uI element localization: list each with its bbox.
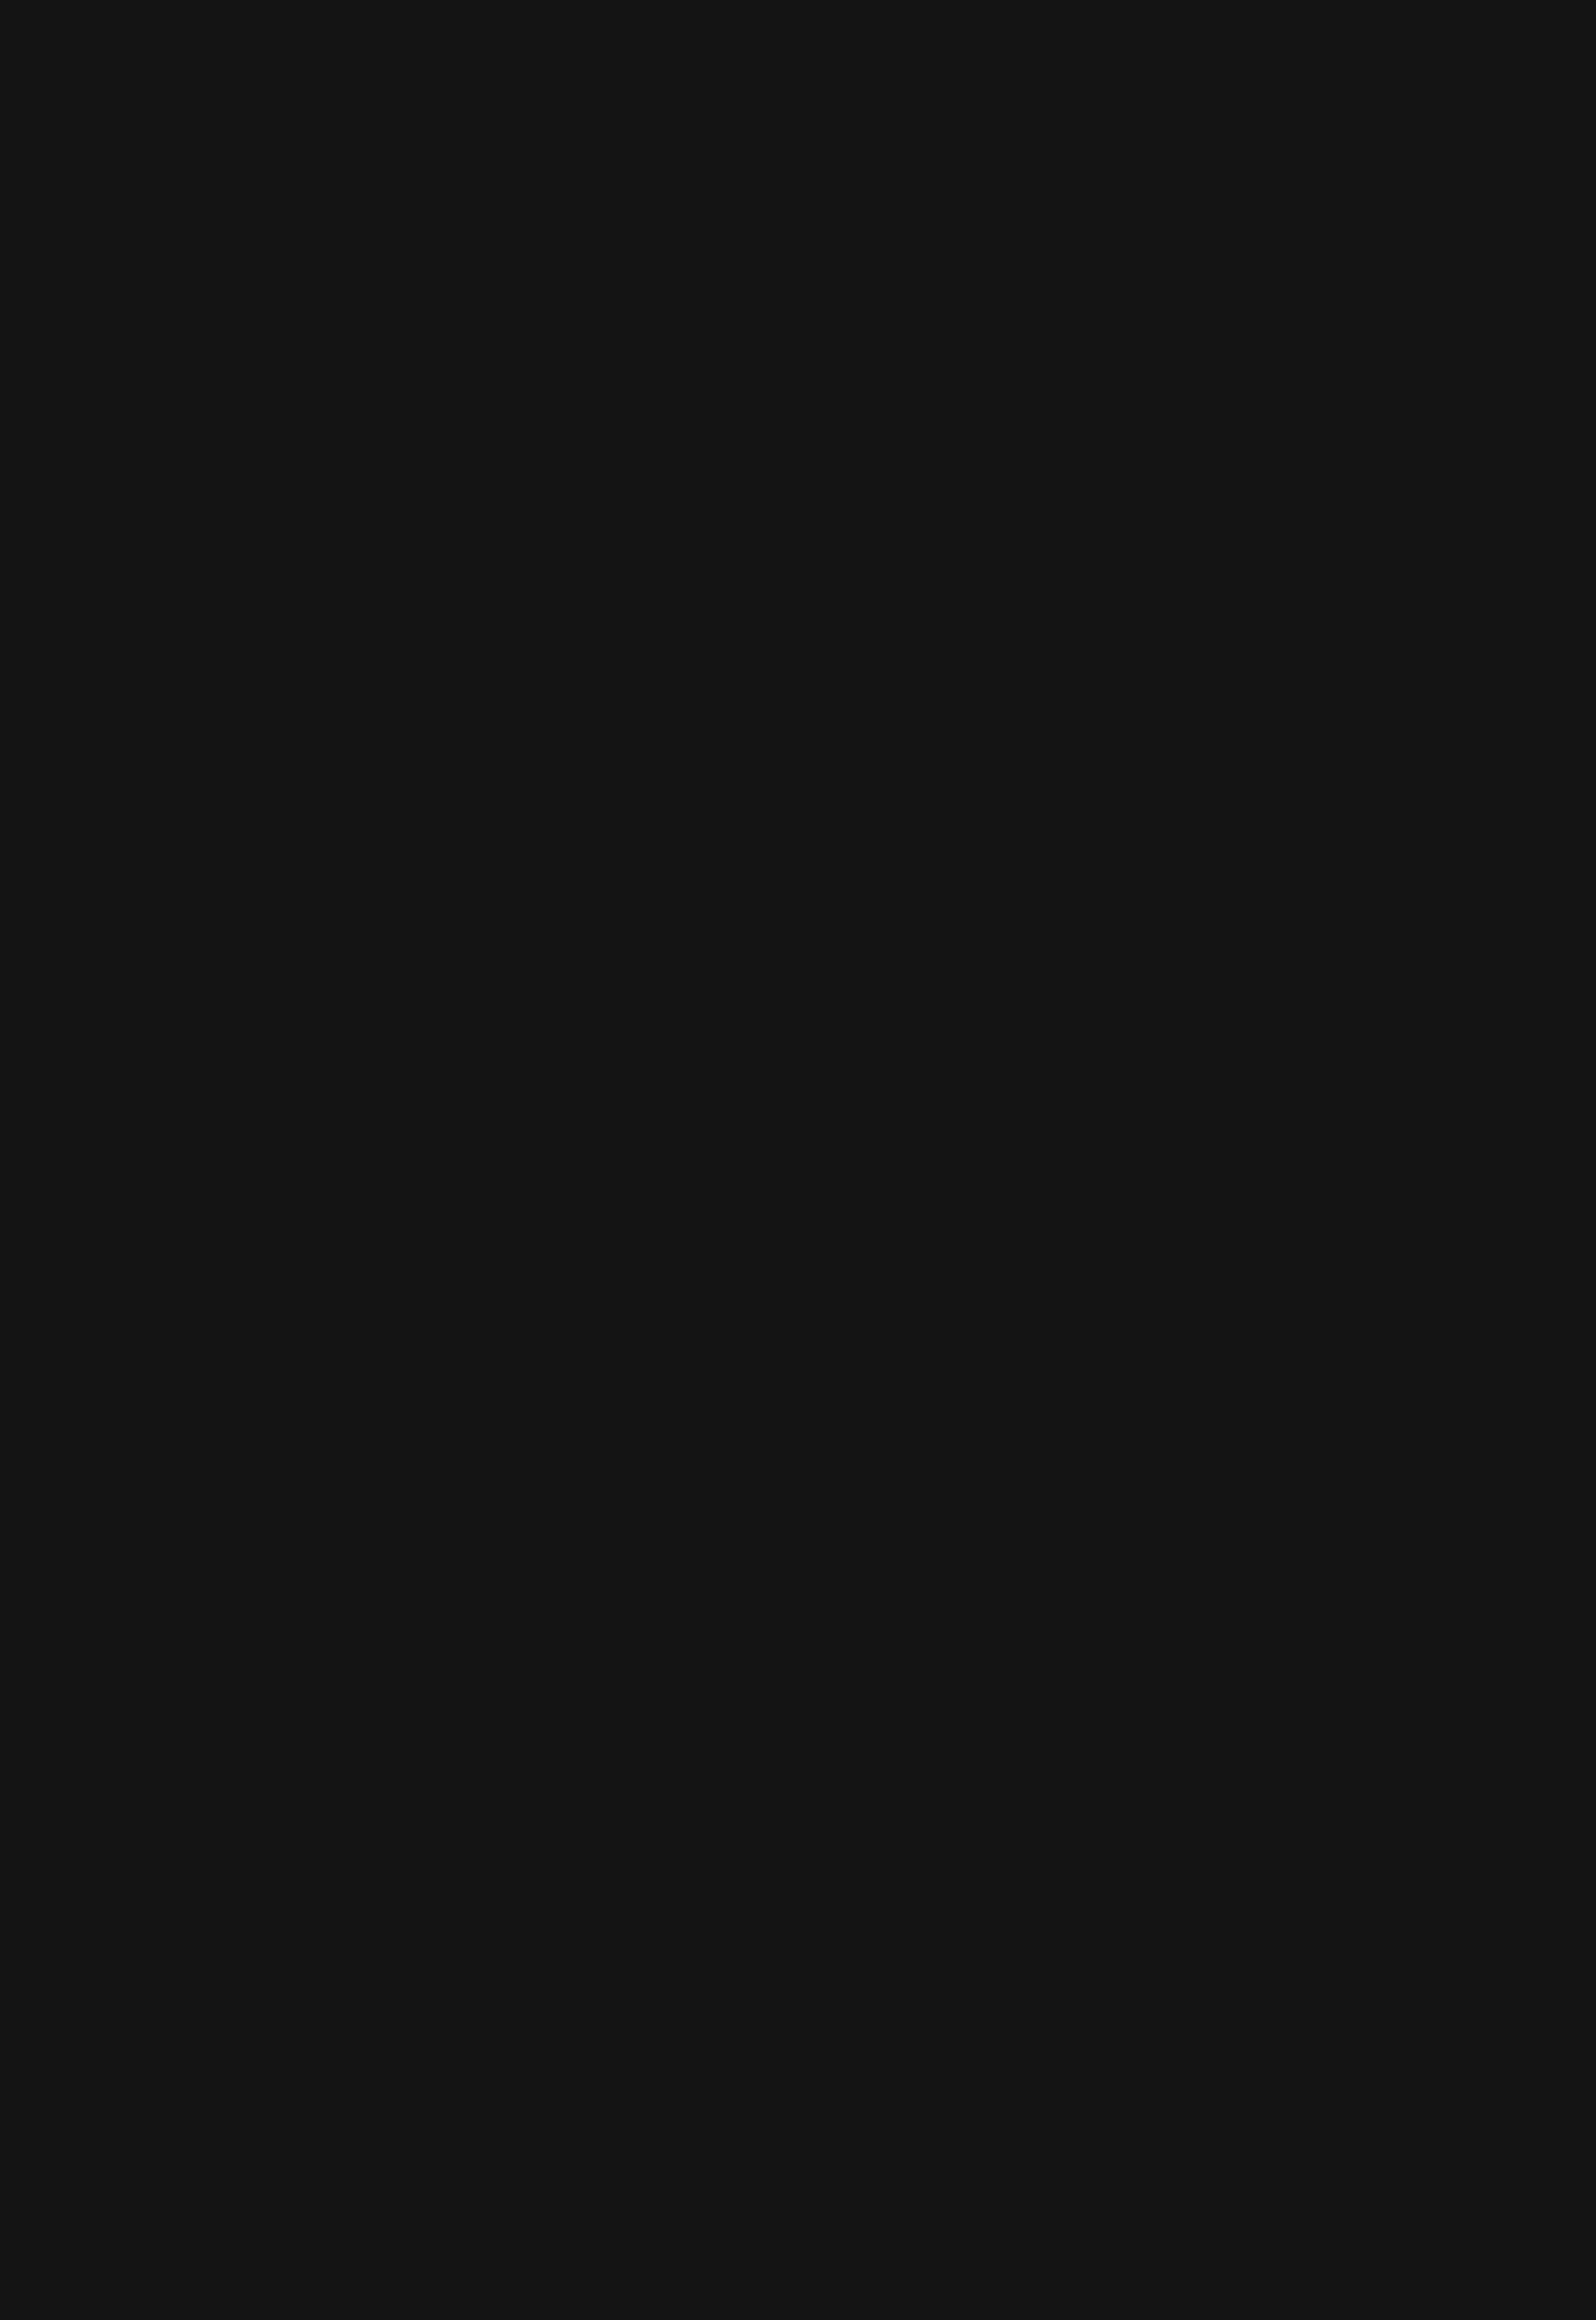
aerial-photo-svg [0,0,1596,2320]
slide-scan [0,0,1596,2320]
